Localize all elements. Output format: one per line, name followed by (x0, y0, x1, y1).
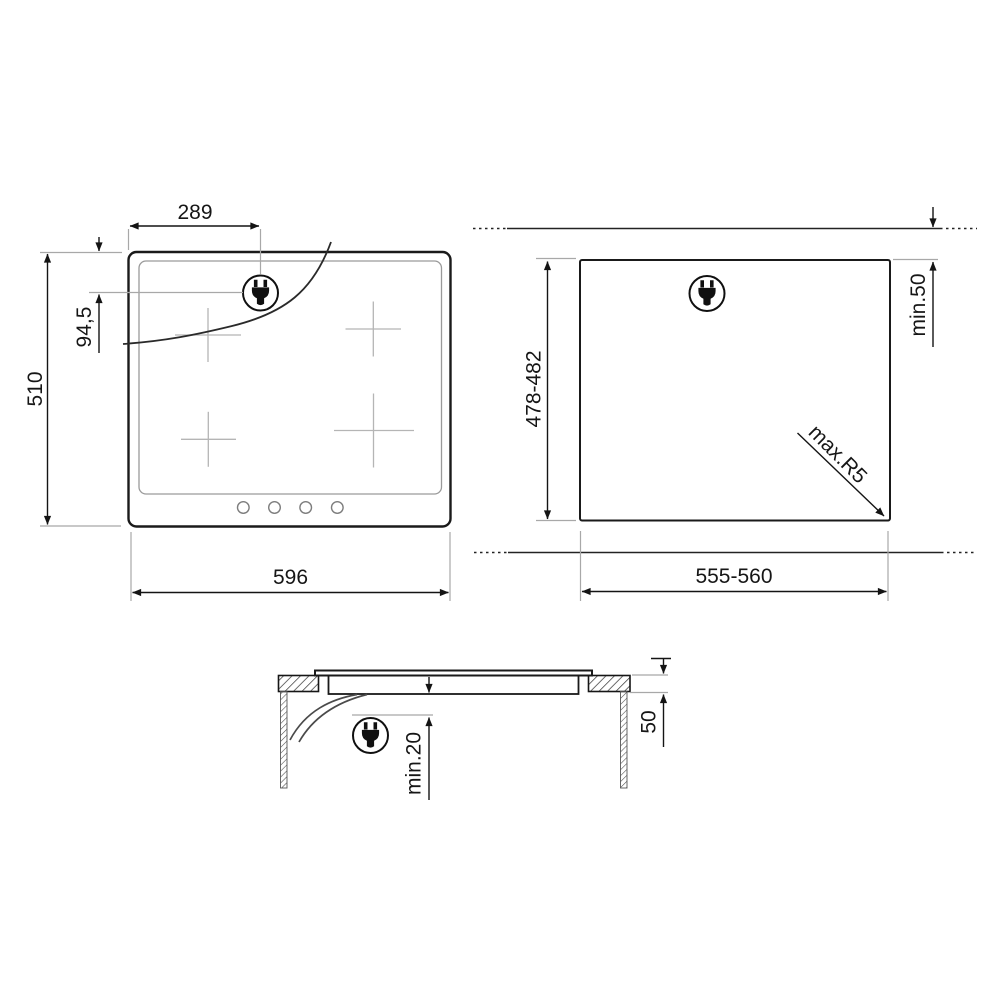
dim-label-hob-depth: 510 (24, 371, 47, 406)
power-plug-icon (690, 276, 725, 311)
dim-label-hob-width: 596 (273, 566, 308, 589)
dim-label-cutout-depth: 478-482 (523, 350, 546, 427)
dim-label-worktop-thickness: 50 (638, 710, 661, 733)
dim-label-rear-clearance: min.50 (907, 273, 930, 336)
dim-label-clearance-below: min.20 (403, 732, 426, 795)
dim-cutout-depth: 478-482 (523, 259, 577, 521)
hob-outline (129, 252, 451, 527)
dim-hob-depth: 510 (24, 254, 121, 526)
cabinet-panel-right (621, 692, 628, 789)
worktop-cutout-view: 478-482 min.50 max.R5 555-560 (473, 207, 977, 601)
dim-hob-width: 596 (131, 532, 450, 601)
power-plug-icon (243, 276, 278, 311)
worktop-block-left (279, 676, 319, 692)
cutout-outline (580, 260, 890, 521)
worktop-block-right (589, 676, 631, 692)
dim-cutout-width: 555-560 (581, 531, 889, 601)
side-section-view: min.20 50 (279, 659, 672, 801)
cabinet-panel-left (281, 692, 288, 789)
power-plug-icon (353, 718, 388, 753)
dim-label-cutout-width: 555-560 (695, 565, 772, 588)
dim-worktop-thickness: 50 (630, 659, 671, 748)
hob-section-body (329, 676, 579, 695)
dim-label-plug-horizontal-offset: 289 (177, 201, 212, 224)
installation-diagram: 289 94,5 510 596 (0, 0, 1000, 1000)
dim-label-plug-vertical-offset: 94,5 (73, 307, 96, 348)
hob-top-view: 289 94,5 510 596 (24, 201, 451, 601)
